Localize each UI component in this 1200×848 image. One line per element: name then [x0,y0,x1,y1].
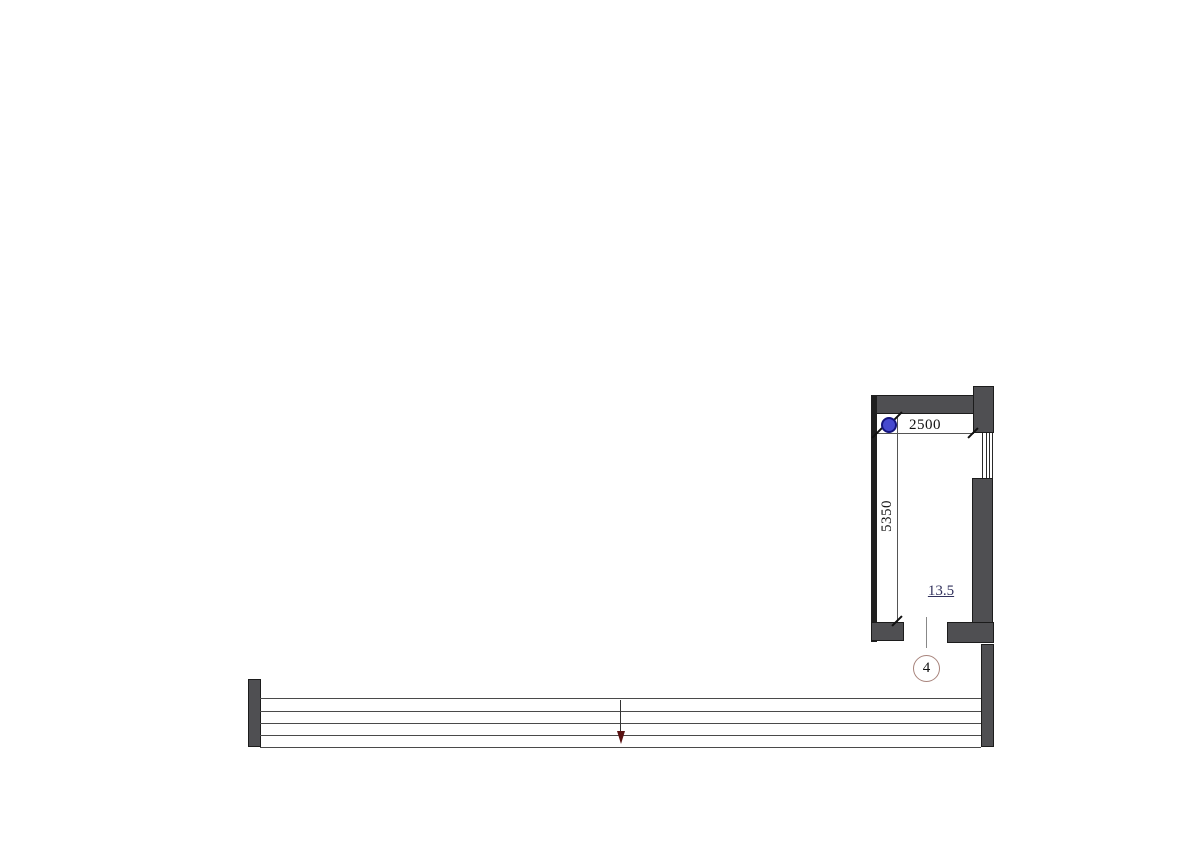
room-right-wall [972,478,993,643]
window-glazing-line [986,433,987,478]
column-marker-icon [881,417,897,433]
window-glazing-line [989,433,990,478]
room-top-right-pillar [973,386,994,433]
room-top-wall [871,395,975,414]
arrow-shaft [620,700,621,733]
section-line [260,698,981,699]
wall-strip-below-room [981,644,994,747]
room-bottom-wall-left [871,622,904,641]
left-wall-end-block [248,679,261,747]
floor-plan-canvas: 2500 5350 13.5 4 [0,0,1200,848]
vertical-dimension-line [897,417,898,622]
callout-number: 4 [923,660,931,677]
window-glazing-line [982,433,983,478]
room-area-label: 13.5 [919,583,963,600]
arrow-down-icon [617,731,625,744]
section-line [260,747,981,748]
door-centerline [926,617,927,648]
callout-circle: 4 [913,655,940,682]
dimension-label-width: 2500 [893,418,957,432]
dimension-label-height: 5350 [880,484,894,548]
window-glazing-line [992,433,993,478]
horizontal-dimension-line [877,433,974,434]
room-bottom-wall-right [947,622,994,643]
